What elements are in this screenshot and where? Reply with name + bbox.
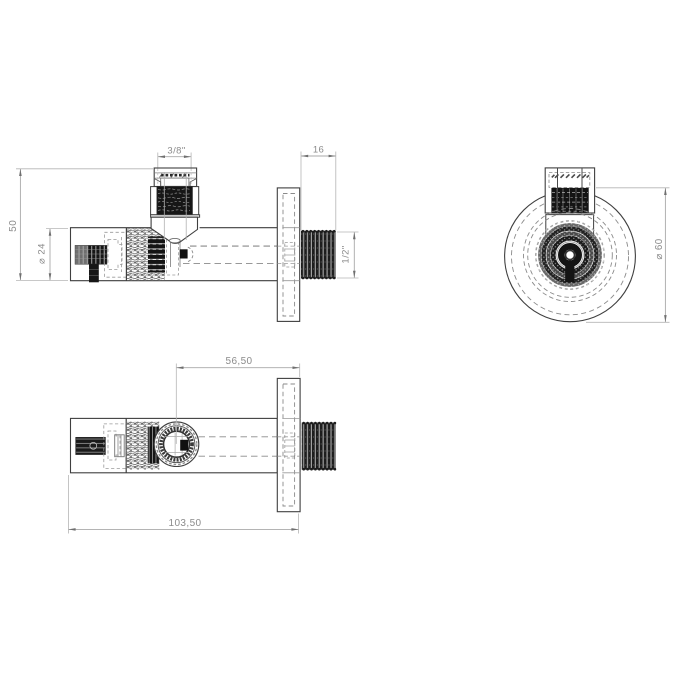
svg-text:16: 16 bbox=[313, 145, 324, 156]
svg-text:50: 50 bbox=[8, 220, 19, 232]
svg-text:56,50: 56,50 bbox=[225, 356, 252, 367]
svg-text:1/2": 1/2" bbox=[341, 245, 352, 263]
svg-text:⌀ 24: ⌀ 24 bbox=[37, 243, 48, 264]
svg-text:⌀ 60: ⌀ 60 bbox=[654, 238, 665, 259]
svg-text:103,50: 103,50 bbox=[169, 518, 202, 529]
svg-text:3/8": 3/8" bbox=[167, 146, 185, 157]
